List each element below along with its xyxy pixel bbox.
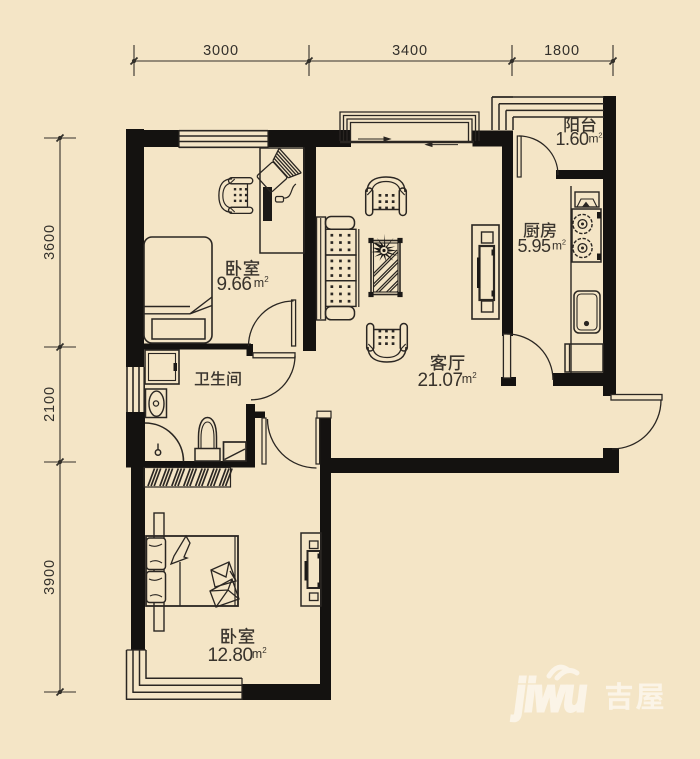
svg-text:m: m [252, 647, 262, 661]
svg-text:2: 2 [598, 131, 602, 140]
svg-text:m: m [552, 239, 562, 253]
svg-text:1800: 1800 [544, 43, 580, 59]
svg-text:m: m [254, 276, 264, 290]
svg-text:3600: 3600 [42, 224, 58, 260]
svg-text:2100: 2100 [42, 386, 58, 422]
svg-text:2: 2 [264, 275, 269, 284]
svg-text:m: m [462, 372, 472, 386]
svg-text:21.07: 21.07 [417, 370, 462, 391]
svg-text:m: m [589, 132, 599, 146]
svg-text:12.80: 12.80 [207, 645, 252, 666]
svg-text:5.95: 5.95 [517, 236, 551, 256]
svg-text:9.66: 9.66 [217, 274, 252, 295]
svg-text:3000: 3000 [203, 43, 239, 59]
svg-text:2: 2 [472, 371, 477, 380]
svg-text:3900: 3900 [42, 559, 58, 595]
svg-text:3400: 3400 [392, 43, 428, 59]
svg-text:2: 2 [262, 646, 267, 655]
svg-text:2: 2 [562, 238, 566, 247]
svg-text:1.60: 1.60 [555, 129, 589, 149]
